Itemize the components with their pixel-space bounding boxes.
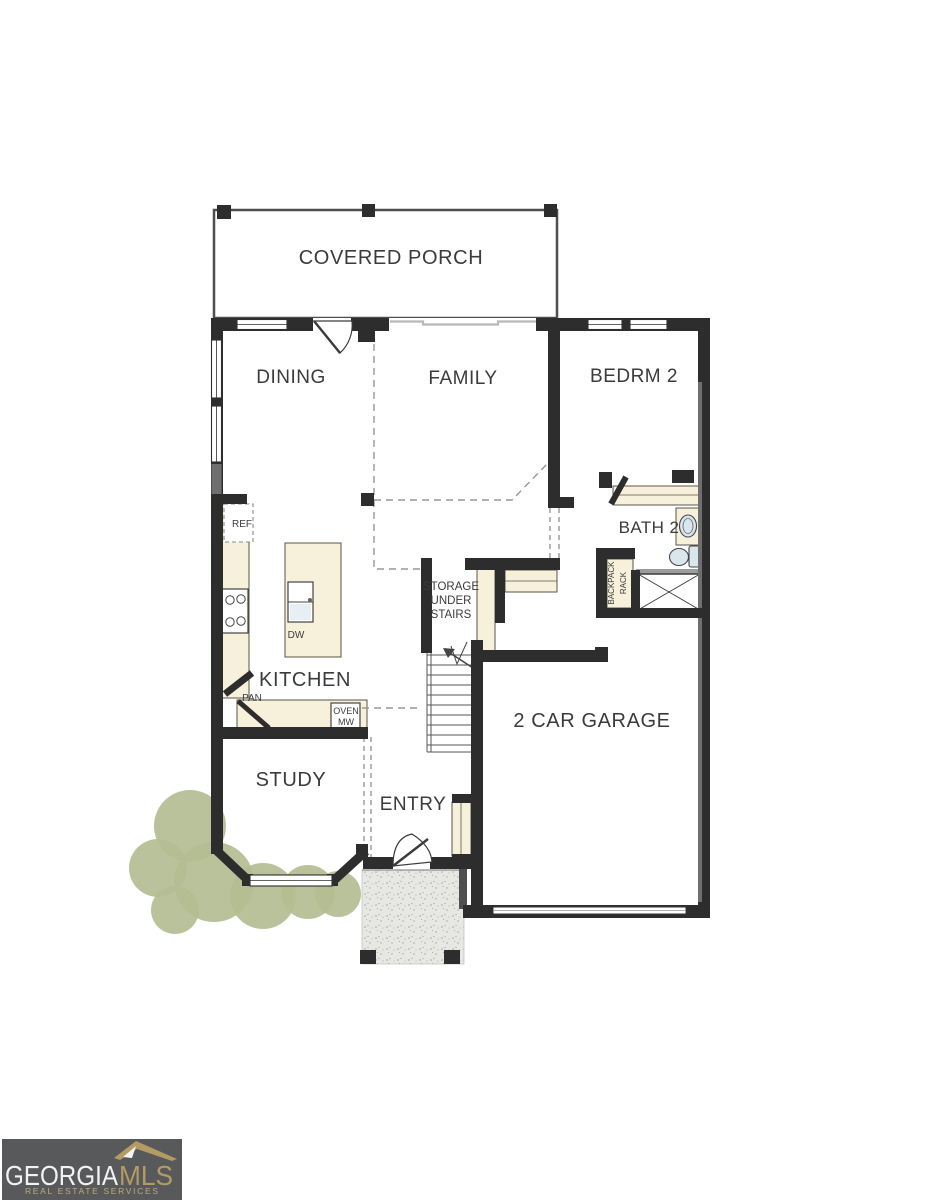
floor-plan-page: COVERED PORCH DINING FAMILY BEDRM 2 BATH… [0,0,927,1200]
backpack-rack-label-line2: RACK [619,571,628,594]
room-label-entry: ENTRY [380,794,447,815]
room-label-bedrm2: BEDRM 2 [590,366,678,387]
room-label-bath2: BATH 2 [619,518,680,537]
stoop-post [444,950,460,964]
dishwasher-label: DW [288,630,305,641]
porch-door-swing [314,321,352,353]
refrigerator-label: REF [232,519,252,530]
cooktop [222,589,248,633]
stoop-post [360,950,376,964]
island-sink-dishwasher [288,582,313,622]
landscaping-bushes [129,790,361,934]
floor-plan-drawing: COVERED PORCH DINING FAMILY BEDRM 2 BATH… [0,0,927,1200]
porch-post [544,204,557,217]
bath-sink [680,515,697,537]
storage-door-leaf [477,565,495,653]
oven-label: OVEN [333,706,359,716]
microwave-label: MW [338,717,354,727]
room-label-covered-porch: COVERED PORCH [299,247,484,269]
georgia-mls-logo: GEORGIA MLS REAL ESTATE SERVICES [2,1139,182,1200]
bedroom-closet-shelf [613,486,702,505]
logo-tagline-text: REAL ESTATE SERVICES [25,1186,158,1196]
room-label-garage: 2 CAR GARAGE [513,710,670,732]
storage-label-line3: STAIRS [431,609,472,621]
front-door-swing [393,834,432,866]
room-label-dining: DINING [256,367,326,388]
pantry-label: PAN [242,693,262,704]
backpack-rack-label-line1: BACKPACK [607,561,616,605]
entry-closet [452,802,471,856]
staircase [427,642,473,752]
shower [636,569,700,610]
room-label-study: STUDY [256,769,327,791]
porch-post [362,204,375,217]
room-label-kitchen: KITCHEN [259,669,351,691]
toilet [670,546,702,567]
front-stoop [360,857,467,964]
room-label-family: FAMILY [428,368,497,389]
porch-post [217,205,231,219]
storage-label-line1: STORAGE [423,581,479,593]
storage-label-line2: UNDER [431,595,472,607]
